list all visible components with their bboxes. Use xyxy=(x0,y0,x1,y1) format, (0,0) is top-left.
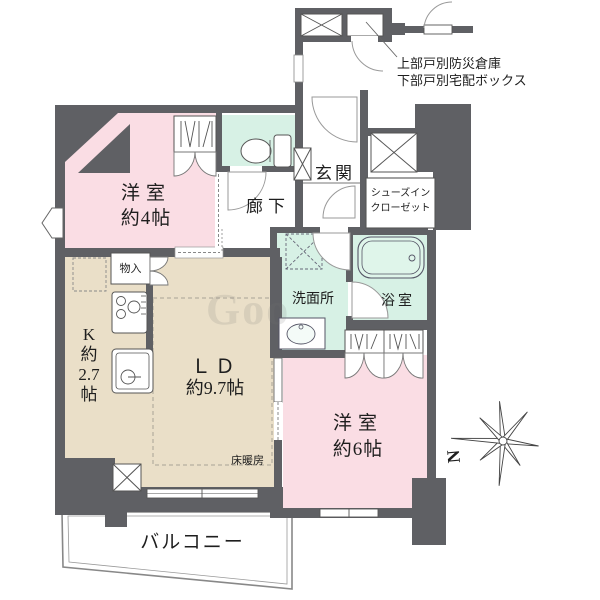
storage-label: 物入 xyxy=(112,260,149,276)
closet-western6 xyxy=(345,330,423,378)
western6-name: 洋室 xyxy=(308,408,408,435)
bathroom-label: 浴室 xyxy=(372,290,424,310)
left-wall-vent xyxy=(42,208,63,238)
hallway-label: 廊下 xyxy=(246,192,290,217)
western6-door-leaf xyxy=(274,358,282,402)
kitchen-sink-icon xyxy=(112,349,153,393)
floor-plan: Goo 上部戸別防災倉庫 下部戸別宅配ボックス 洋室 約4帖 廊下 玄関 シュー… xyxy=(0,0,600,600)
shoes-closet-label: シューズイン クローゼット xyxy=(367,186,434,216)
ld-size: 約9.7帖 xyxy=(160,374,270,400)
annotation-line2: 下部戸別宅配ボックス xyxy=(397,70,527,89)
washroom-label: 洗面所 xyxy=(281,288,345,308)
shaft-entrance xyxy=(294,148,311,180)
shaft-ne xyxy=(371,133,417,172)
western6-size: 約6帖 xyxy=(308,434,408,461)
balcony-label: バルコニー xyxy=(130,527,255,554)
shaft-sw xyxy=(113,464,141,491)
kitchen-label: K 約 2.7 帖 xyxy=(74,325,104,405)
floor-heating-label: 床暖房 xyxy=(231,452,264,468)
western4-name: 洋室 xyxy=(96,178,196,205)
watermark: Goo xyxy=(206,284,290,335)
entrance-door xyxy=(312,97,357,142)
entrance-label: 玄関 xyxy=(315,159,355,184)
stove-icon xyxy=(112,292,147,333)
entrance-hall-door xyxy=(323,186,355,218)
bathtub-icon xyxy=(358,237,424,278)
compass-north-label: N xyxy=(442,440,466,464)
western4-size: 約4帖 xyxy=(96,203,196,230)
entry-window xyxy=(294,55,303,82)
